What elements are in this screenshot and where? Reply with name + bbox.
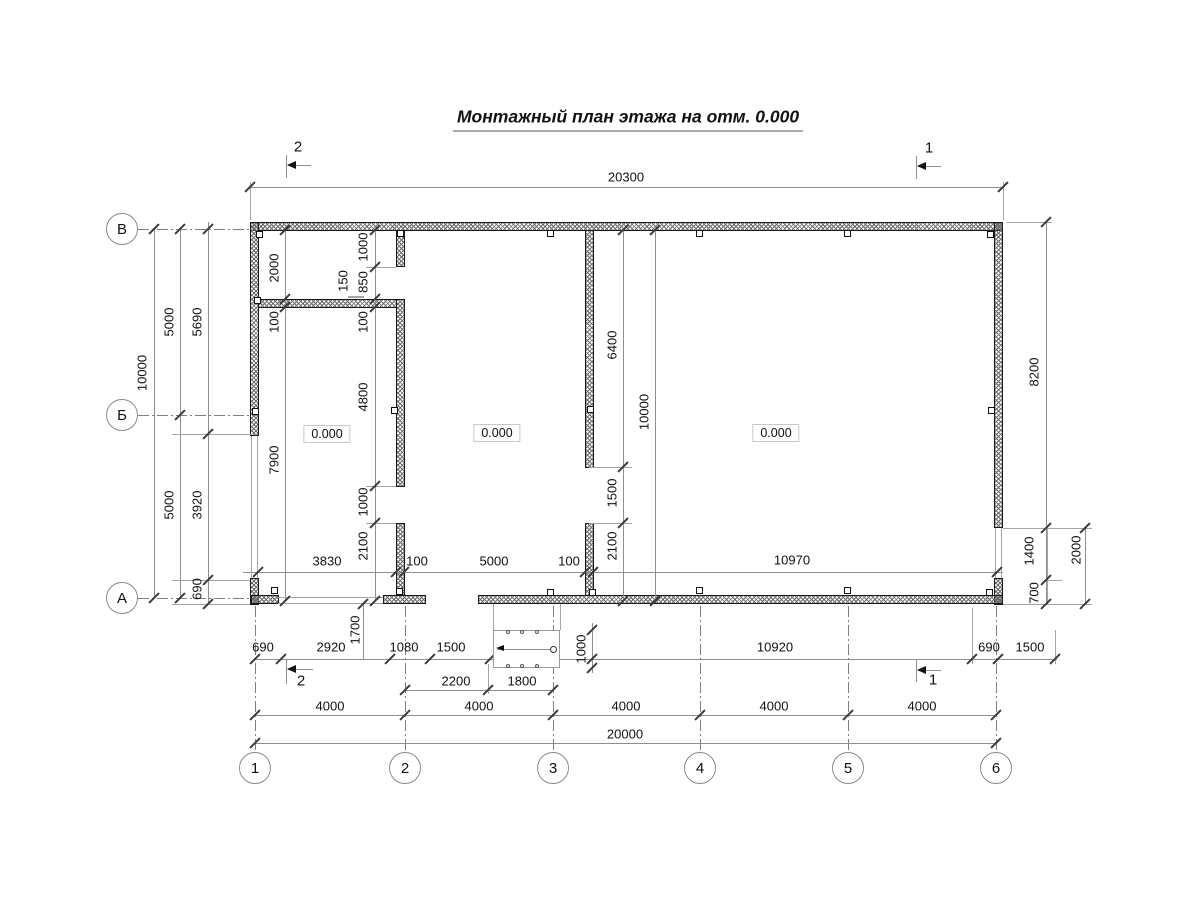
embed-plate-mark	[696, 587, 703, 594]
dim-label: 10000	[638, 394, 651, 430]
extension-line	[560, 604, 561, 630]
dim-label: 1500	[606, 479, 619, 508]
embed-plate-mark	[589, 589, 596, 596]
axis-circle-row-А: А	[106, 582, 138, 614]
axis-centerline	[700, 606, 701, 751]
wall-segment	[585, 523, 594, 596]
wall-segment	[994, 222, 1003, 528]
axis-circle-col-3: 3	[537, 752, 569, 784]
extension-line	[366, 523, 396, 524]
dim-label: 8200	[1028, 358, 1041, 387]
dimension-line	[560, 659, 1057, 660]
ramp-post-dot	[506, 664, 510, 668]
section-arrow-icon	[287, 161, 296, 169]
extension-line	[172, 604, 250, 605]
dim-label: 1800	[508, 675, 537, 688]
ramp-post-dot	[535, 664, 539, 668]
dim-label: 5690	[191, 308, 204, 337]
extension-line	[366, 486, 396, 487]
dimension-line	[208, 222, 209, 604]
wall-segment	[250, 222, 259, 436]
axis-centerline	[138, 415, 258, 416]
dim-label: 5000	[163, 308, 176, 337]
elevation-mark: 0.000	[473, 424, 520, 442]
dimension-line	[375, 230, 376, 601]
dim-label: 2920	[317, 641, 346, 654]
dim-label: 2100	[606, 532, 619, 561]
axis-circle-col-4: 4	[684, 752, 716, 784]
dim-label: 4800	[357, 383, 370, 412]
extension-line	[589, 523, 632, 524]
dimension-line	[363, 604, 364, 659]
dim-label: 690	[978, 641, 1000, 654]
embed-plate-mark	[844, 587, 851, 594]
dim-label: 10970	[774, 554, 810, 567]
dim-label: 1500	[1016, 641, 1045, 654]
ramp-post-dot	[520, 664, 524, 668]
embed-plate-mark	[986, 589, 993, 596]
embed-plate-mark	[252, 408, 259, 415]
dim-label: 2200	[442, 675, 471, 688]
extension-line	[172, 434, 258, 435]
axis-circle-col-5: 5	[832, 752, 864, 784]
dim-label: 3830	[313, 555, 342, 568]
wall-segment	[396, 523, 405, 596]
dim-label: 1000	[575, 635, 588, 664]
dim-label: 690	[252, 641, 274, 654]
dimension-line	[255, 743, 996, 744]
dim-label: 2000	[268, 254, 281, 283]
dimension-line	[154, 229, 155, 598]
dim-label: 1080	[390, 641, 419, 654]
axis-centerline	[996, 606, 997, 751]
embed-plate-mark	[987, 231, 994, 238]
extension-line	[1001, 528, 1002, 578]
section-arrow-icon	[917, 162, 926, 170]
ramp-post-dot	[535, 630, 539, 634]
axis-circle-col-6: 6	[980, 752, 1012, 784]
axis-centerline	[405, 606, 406, 751]
section-label: 2	[297, 673, 305, 690]
dim-label: 20000	[607, 728, 643, 741]
wall-segment	[383, 595, 426, 604]
extension-line	[257, 436, 258, 578]
dimension-line	[255, 659, 493, 660]
dimension-line	[655, 230, 656, 601]
dim-label: 4000	[465, 700, 494, 713]
extension-line	[493, 604, 494, 630]
extension-line	[1003, 604, 1092, 605]
extension-line	[278, 603, 383, 604]
extension-line	[1047, 528, 1048, 604]
embed-plate-mark	[396, 588, 403, 595]
extension-line	[1047, 580, 1062, 581]
embed-plate-mark	[254, 297, 261, 304]
dim-label: 4000	[316, 700, 345, 713]
embed-plate-mark	[547, 589, 554, 596]
dimension-line	[285, 230, 286, 601]
dimension-line	[1085, 528, 1086, 604]
section-label: 1	[925, 140, 933, 157]
dimension-line	[623, 230, 624, 601]
wall-segment	[478, 595, 1003, 604]
extension-line	[589, 467, 632, 468]
dim-label: 1000	[357, 488, 370, 517]
axis-circle-row-В: В	[106, 213, 138, 245]
dim-label: 2100	[357, 532, 370, 561]
embed-plate-mark	[271, 587, 278, 594]
extension-line	[348, 296, 364, 298]
extension-line	[172, 580, 250, 581]
extension-line	[366, 267, 396, 268]
dim-label: 2000	[1070, 536, 1083, 565]
dim-label: 150	[337, 270, 350, 292]
axis-centerline	[848, 606, 849, 751]
ramp-slope-line	[497, 649, 553, 650]
dim-label: 6400	[606, 331, 619, 360]
elevation-mark: 0.000	[303, 425, 350, 443]
dim-label: 1500	[437, 641, 466, 654]
dim-label: 5000	[480, 555, 509, 568]
wall-segment	[396, 299, 405, 487]
section-label: 1	[929, 672, 937, 689]
ramp-post-dot	[506, 630, 510, 634]
dim-label: 1700	[349, 616, 362, 645]
ramp-slope-origin	[550, 646, 557, 653]
dim-label: 1400	[1023, 537, 1036, 566]
dim-label: 20300	[608, 171, 644, 184]
dimension-line	[250, 187, 1003, 188]
axis-circle-col-2: 2	[389, 752, 421, 784]
dim-label: 100	[406, 555, 428, 568]
dimension-line	[255, 715, 996, 716]
dim-label: 10000	[136, 355, 149, 391]
wall-segment	[251, 595, 279, 604]
dim-label: 850	[357, 271, 370, 293]
embed-plate-mark	[256, 231, 263, 238]
embed-plate-mark	[696, 230, 703, 237]
embed-plate-mark	[587, 406, 594, 413]
axis-circle-row-Б: Б	[106, 399, 138, 431]
dim-label: 5000	[163, 491, 176, 520]
dim-label: 690	[191, 578, 204, 600]
extension-line	[251, 436, 252, 578]
embed-plate-mark	[988, 407, 995, 414]
axis-centerline	[255, 606, 256, 751]
section-arrow-icon	[917, 666, 926, 674]
axis-circle-col-1: 1	[239, 752, 271, 784]
dim-label: 100	[558, 555, 580, 568]
embed-plate-mark	[391, 407, 398, 414]
drawing-title: Монтажный план этажа на отм. 0.000	[453, 107, 803, 132]
embed-plate-mark	[397, 230, 404, 237]
dim-label: 1000	[357, 233, 370, 262]
elevation-mark: 0.000	[752, 424, 799, 442]
wall-segment	[585, 230, 594, 468]
section-arrow-icon	[287, 665, 296, 673]
dimension-line	[405, 690, 553, 691]
embed-plate-mark	[844, 230, 851, 237]
dim-label: 100	[357, 311, 370, 333]
dim-label: 7900	[268, 446, 281, 475]
ramp-post-dot	[520, 630, 524, 634]
dim-label: 100	[268, 311, 281, 333]
embed-plate-mark	[547, 230, 554, 237]
dim-label: 4000	[760, 700, 789, 713]
axis-centerline	[553, 606, 554, 751]
ramp-slope-arrow-icon	[496, 645, 504, 651]
dim-label: 4000	[908, 700, 937, 713]
dim-label: 10920	[757, 641, 793, 654]
dim-label: 3920	[191, 491, 204, 520]
floor-plan-drawing: Монтажный план этажа на отм. 0.000 20300…	[0, 0, 1200, 900]
dim-label: 700	[1028, 582, 1041, 604]
section-label: 2	[294, 139, 302, 156]
dim-label: 4000	[612, 700, 641, 713]
